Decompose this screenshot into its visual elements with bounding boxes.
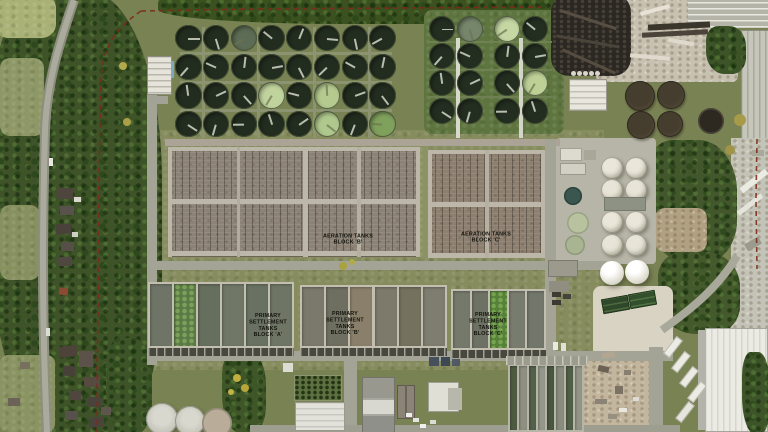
clarifier-tank — [457, 16, 483, 42]
settlement-lane — [519, 366, 526, 430]
scraper-arm — [469, 29, 474, 40]
settlement-lane — [556, 366, 563, 430]
gorse-bush — [241, 384, 249, 392]
scraper-arm — [470, 78, 481, 84]
machinery — [595, 399, 607, 404]
clarifier-tank — [369, 54, 395, 80]
scraper-arm — [215, 39, 220, 50]
machinery — [615, 386, 623, 394]
scraper-arm — [206, 62, 217, 68]
debris — [619, 408, 627, 412]
walkway — [168, 199, 420, 204]
clarifier-tank — [286, 54, 312, 80]
sludge-digester — [625, 81, 655, 111]
beds-strip — [506, 356, 588, 365]
small-building — [560, 163, 586, 175]
small-building — [283, 363, 293, 372]
scraper-arm — [216, 91, 227, 97]
plant-roof-section — [363, 400, 394, 414]
scraper-arm — [354, 39, 358, 50]
scraper-arm — [188, 38, 199, 40]
settlement-lane — [529, 366, 536, 430]
blue-unit — [171, 61, 174, 78]
white-storage-tank — [625, 211, 647, 233]
scraper-arm — [506, 83, 515, 92]
settlement-lane — [509, 291, 526, 348]
walkway — [168, 147, 172, 257]
scraper-arm — [327, 38, 338, 41]
clarifier-tank — [231, 25, 257, 51]
settlement-lane — [174, 284, 196, 346]
clarifier-tank — [314, 25, 340, 51]
scraper-arm — [382, 96, 390, 106]
settlement-lane — [150, 284, 172, 346]
machinery — [608, 414, 617, 419]
clarifier-tank — [314, 82, 340, 108]
gorse-bush — [725, 145, 735, 155]
settlement-lane — [527, 291, 544, 348]
scraper-arm — [526, 22, 536, 30]
clarifier-tank — [175, 82, 201, 108]
scraper-arm — [326, 85, 328, 96]
scraper-arm — [497, 29, 507, 36]
scraper-arm — [371, 123, 382, 125]
left-clearing — [0, 58, 44, 136]
scraper-arm — [434, 56, 442, 65]
left-clearing — [0, 205, 40, 280]
aerial-photo-wastewater-plant: AERATION TANKS BLOCK 'B'AERATION TANKS B… — [0, 0, 768, 432]
road — [649, 347, 663, 432]
house — [101, 407, 111, 415]
settlement-lane — [302, 287, 324, 346]
gorse-bush — [228, 389, 234, 395]
yard-mark — [752, 150, 764, 156]
car — [561, 343, 566, 351]
primary-tanks-block-b — [300, 285, 447, 348]
vehicle — [552, 300, 561, 305]
road — [344, 351, 357, 432]
scraper-strip — [300, 348, 447, 356]
walkway — [237, 147, 240, 257]
gorse-bush — [349, 259, 355, 265]
clarifier-tank — [522, 16, 548, 42]
clarifier-tank — [231, 82, 257, 108]
vehicle — [563, 294, 571, 299]
dark-tank — [698, 108, 724, 134]
house — [84, 377, 101, 388]
clarifier-tank — [342, 54, 368, 80]
shed — [549, 281, 569, 292]
scraper-arm — [350, 125, 355, 136]
scraper-arm — [496, 111, 507, 113]
gorse-bush — [233, 374, 241, 382]
house — [57, 188, 74, 200]
scraper-arm — [506, 45, 509, 56]
house — [69, 391, 81, 400]
car — [46, 328, 50, 336]
scraper-arm — [212, 125, 217, 136]
clarifier-tank — [342, 111, 368, 137]
machinery — [624, 370, 631, 375]
clarifier-tank — [286, 25, 312, 51]
container — [452, 359, 460, 366]
scraper-strip — [148, 348, 294, 356]
tree-patch — [742, 352, 768, 432]
garden-shed — [20, 362, 30, 369]
clarifier-tank — [342, 82, 368, 108]
shed — [548, 260, 578, 277]
car — [430, 420, 436, 424]
clarifier-tank — [175, 54, 201, 80]
white-storage-tank — [625, 234, 647, 256]
gas-holder-sphere — [600, 261, 624, 285]
small-building — [560, 148, 582, 161]
clarifier-tank — [258, 111, 284, 137]
clarifier-tank — [231, 54, 257, 80]
clarifier-tank — [258, 25, 284, 51]
white-storage-tank — [601, 157, 623, 179]
drying-beds — [508, 364, 584, 432]
walkway — [541, 150, 545, 258]
white-building — [569, 79, 607, 111]
clarifier-tank — [314, 54, 340, 80]
clarifier-tank — [175, 25, 201, 51]
red-roof-building — [59, 288, 69, 296]
house — [87, 397, 102, 408]
scraper-arm — [262, 31, 272, 39]
outbuilding — [74, 197, 81, 202]
clarifier-tank — [175, 111, 201, 137]
sludge-dome — [146, 403, 178, 432]
clarifier-tank — [369, 25, 395, 51]
house — [63, 365, 76, 376]
long-white-building — [295, 402, 345, 431]
clarifier-tank — [286, 82, 312, 108]
house — [60, 206, 74, 215]
settlement-lane — [375, 287, 397, 346]
scraper-arm — [326, 124, 336, 132]
walkway — [428, 150, 432, 258]
settlement-lane — [566, 366, 573, 430]
clarifier-tank — [494, 70, 520, 96]
scraper-arm — [466, 111, 471, 122]
corner-light-grass — [0, 0, 56, 38]
outbuilding — [72, 232, 78, 237]
scraper-arm — [299, 67, 305, 78]
pale-clarifier — [567, 212, 589, 234]
pipe-stub — [577, 71, 582, 76]
scraper-arm — [440, 73, 443, 84]
clarifier-tank — [522, 43, 548, 69]
gorse-bush — [119, 62, 127, 70]
walkway — [168, 147, 420, 151]
scraper-arm — [318, 67, 327, 76]
clarifier-tank — [457, 43, 483, 69]
gorse-bush — [123, 118, 131, 126]
truck-trailer — [675, 401, 695, 423]
gorse-bush — [339, 262, 347, 270]
white-storage-tank — [601, 211, 623, 233]
car — [553, 342, 558, 350]
garden-shed — [8, 398, 20, 406]
clarifier-tank — [457, 98, 483, 124]
scraper-arm — [529, 83, 536, 93]
clarifier-tank — [429, 43, 455, 69]
pipe-stub — [571, 71, 576, 76]
scraper-arm — [354, 92, 365, 97]
white-storage-tank — [601, 234, 623, 256]
road — [148, 261, 606, 270]
scraper-arm — [372, 38, 383, 45]
car — [413, 418, 419, 422]
label-primary-settlement-tanks-block-a: PRIMARY SETTLEMENT TANKS BLOCK 'A' — [249, 314, 287, 339]
label-primary-settlement-tanks-block-c: PRIMARY SETTLEMENT TANKS BLOCK 'C' — [469, 313, 507, 338]
scraper-arm — [271, 65, 282, 69]
clarifier-tank — [494, 16, 520, 42]
house — [58, 345, 77, 358]
label-aeration-tanks-block-c: AERATION TANKS BLOCK 'C' — [461, 232, 511, 244]
clarifier-tank — [258, 82, 284, 108]
settlement-lane — [423, 287, 445, 346]
scraper-arm — [243, 96, 252, 105]
debris — [633, 397, 639, 401]
sludge-digester — [657, 81, 685, 109]
scraper-arm — [299, 118, 309, 126]
gorse-bush — [734, 114, 746, 126]
container — [441, 357, 450, 366]
scraper-arm — [267, 114, 272, 125]
clarifier-tank — [522, 70, 548, 96]
scraper-arm — [234, 38, 244, 46]
pipe-stub — [595, 71, 600, 76]
scraper-arm — [535, 54, 546, 57]
label-primary-settlement-tanks-block-b: PRIMARY SETTLEMENT TANKS BLOCK 'B' — [326, 312, 364, 337]
pipe-stub — [583, 71, 588, 76]
walkway — [168, 251, 420, 256]
scraper-arm — [186, 85, 189, 96]
teal-tank — [564, 187, 582, 205]
gas-holder-sphere — [625, 260, 649, 284]
clarifier-tank — [203, 82, 229, 108]
clarifier-tank — [258, 54, 284, 80]
sludge-dome — [175, 406, 205, 432]
vehicle — [552, 292, 561, 297]
scraper-arm — [188, 124, 198, 131]
settlement-lane — [198, 284, 220, 346]
clarifier-tank — [203, 54, 229, 80]
settlement-lane — [538, 366, 545, 430]
clarifier-tank — [342, 25, 368, 51]
sludge-digester — [657, 111, 683, 137]
clarifier-tank — [522, 98, 548, 124]
pipe-stub — [589, 71, 594, 76]
small-building — [584, 150, 596, 160]
label-aeration-tanks-block-b: AERATION TANKS BLOCK 'B' — [323, 234, 373, 246]
scraper-arm — [181, 67, 190, 76]
white-storage-tank — [625, 157, 647, 179]
house — [65, 411, 78, 420]
building-wing — [448, 388, 462, 410]
scraper-arm — [288, 93, 299, 97]
plant-roof-section — [363, 416, 394, 432]
path — [165, 139, 560, 146]
car — [406, 413, 412, 417]
settlement-lane — [510, 366, 517, 430]
tree-patch — [706, 26, 746, 74]
car — [49, 158, 53, 166]
sludge-dome — [202, 408, 232, 432]
walkway — [303, 147, 308, 257]
settlement-lane — [547, 366, 554, 430]
screening-building — [147, 56, 172, 95]
house — [89, 416, 105, 427]
scraper-arm — [345, 62, 356, 69]
clarifier-tank — [494, 98, 520, 124]
car — [420, 424, 426, 428]
clarifier-tank — [494, 43, 520, 69]
filter-bed — [294, 375, 342, 401]
scraper-arm — [442, 111, 452, 118]
plant-roof-section — [363, 378, 394, 398]
settlement-lane — [453, 291, 470, 348]
scraper-arm — [442, 29, 453, 31]
house — [79, 351, 93, 367]
pale-clarifier — [565, 235, 585, 255]
house — [56, 223, 72, 234]
clarifier-tank — [203, 25, 229, 51]
clarifier-tank — [429, 98, 455, 124]
scraper-arm — [531, 101, 536, 112]
walkway — [416, 147, 420, 257]
settlement-lane — [575, 366, 582, 430]
scraper-arm — [243, 56, 246, 67]
small-shed — [150, 96, 168, 104]
scraper-arm — [460, 51, 471, 57]
container — [429, 357, 439, 366]
scraper-arm — [382, 57, 386, 68]
clarifier-tank — [457, 70, 483, 96]
settlement-lane — [222, 284, 244, 346]
clarifier-tank — [369, 82, 395, 108]
settlement-lane — [399, 287, 421, 346]
house — [58, 257, 72, 266]
road — [545, 139, 556, 361]
scraper-arm — [265, 96, 272, 106]
scraper-arm — [299, 28, 305, 39]
scraper-arm — [233, 124, 244, 126]
clarifier-tank — [369, 111, 395, 137]
warehouse-apron — [698, 330, 706, 430]
house — [61, 242, 74, 251]
tank-gantry — [604, 197, 646, 211]
clarifier-tank — [429, 70, 455, 96]
sludge-digester — [627, 111, 655, 139]
dirt-patch — [655, 208, 707, 252]
clarifier-tank — [429, 16, 455, 42]
